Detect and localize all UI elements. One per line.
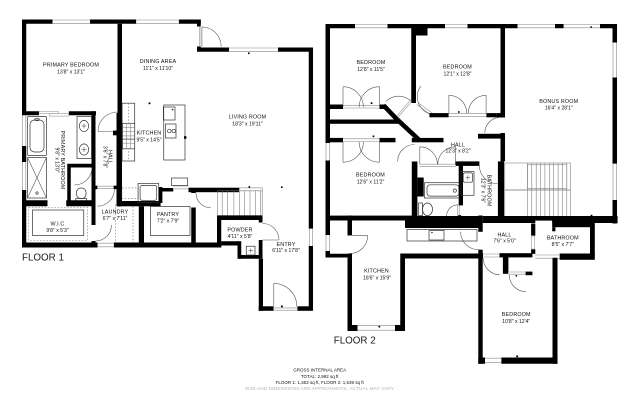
svg-text:9'8" x 13'0": 9'8" x 13'0" xyxy=(54,147,60,172)
svg-text:10'8" x 12'4": 10'8" x 12'4" xyxy=(502,319,530,325)
svg-text:FLOOR 1: 1,353 sq ft, FLOOR 2:: FLOOR 1: 1,353 sq ft, FLOOR 2: 1,639 sq … xyxy=(276,380,365,385)
svg-text:13'8" x 13'1": 13'8" x 13'1" xyxy=(57,70,85,76)
svg-text:12'6" x 11'2": 12'6" x 11'2" xyxy=(357,180,385,186)
svg-text:BEDROOM: BEDROOM xyxy=(356,173,385,179)
svg-text:KITCHEN: KITCHEN xyxy=(364,269,389,275)
svg-text:18'3" x 19'11": 18'3" x 19'11" xyxy=(232,122,263,128)
svg-text:FLOOR 1: FLOOR 1 xyxy=(22,253,64,264)
svg-text:11'1" x 11'10": 11'1" x 11'10" xyxy=(143,66,173,72)
svg-text:18'6" x 15'9": 18'6" x 15'9" xyxy=(363,276,391,282)
svg-text:TOTAL: 2,992 sq ft: TOTAL: 2,992 sq ft xyxy=(301,374,339,379)
svg-text:7'6" x 5'0": 7'6" x 5'0" xyxy=(493,238,515,244)
svg-text:BEDROOM: BEDROOM xyxy=(443,65,472,71)
svg-text:6'7" x 7'11": 6'7" x 7'11" xyxy=(103,216,128,222)
svg-text:LAUNDRY: LAUNDRY xyxy=(102,210,129,216)
svg-text:9'8" x 5'3": 9'8" x 5'3" xyxy=(46,228,68,234)
svg-text:BEDROOM: BEDROOM xyxy=(357,60,386,66)
svg-text:9'5" x 14'5": 9'5" x 14'5" xyxy=(136,138,161,144)
svg-text:W.I.C: W.I.C xyxy=(51,222,65,228)
svg-text:7'2" x 7'9": 7'2" x 7'9" xyxy=(157,218,179,224)
svg-text:BATHROOM: BATHROOM xyxy=(547,236,579,242)
svg-text:BEDROOM: BEDROOM xyxy=(502,312,531,318)
svg-text:3'6" x 7'8": 3'6" x 7'8" xyxy=(101,146,107,168)
svg-text:FLOOR 2: FLOOR 2 xyxy=(334,336,376,347)
svg-text:12'8" x 11'5": 12'8" x 11'5" xyxy=(357,67,385,73)
svg-text:16'4" x 28'1": 16'4" x 28'1" xyxy=(545,106,573,112)
svg-text:12'3" x 8'2": 12'3" x 8'2" xyxy=(445,148,470,154)
svg-text:12'3" x 7'6": 12'3" x 7'6" xyxy=(480,178,486,203)
svg-text:PRIMARY BEDROOM: PRIMARY BEDROOM xyxy=(43,63,99,69)
svg-text:POWDER: POWDER xyxy=(227,228,252,234)
svg-text:PANTRY: PANTRY xyxy=(157,212,180,218)
svg-text:DINING AREA: DINING AREA xyxy=(140,59,177,65)
svg-text:KITCHEN: KITCHEN xyxy=(137,131,162,137)
svg-text:8'5" x 7'7": 8'5" x 7'7" xyxy=(552,242,574,248)
svg-text:6'11" x 17'8": 6'11" x 17'8" xyxy=(272,248,300,254)
svg-text:GROSS INTERNAL AREA: GROSS INTERNAL AREA xyxy=(293,368,346,373)
svg-text:12'1" x 12'8": 12'1" x 12'8" xyxy=(444,72,472,78)
svg-text:BONUS ROOM: BONUS ROOM xyxy=(539,99,578,105)
svg-text:SIZE AND DIMENSIONS ARE APPROX: SIZE AND DIMENSIONS ARE APPROXIMATE, ACT… xyxy=(245,386,395,392)
svg-text:LIVING ROOM: LIVING ROOM xyxy=(229,115,267,121)
svg-text:4'11" x 5'8": 4'11" x 5'8" xyxy=(228,234,253,240)
